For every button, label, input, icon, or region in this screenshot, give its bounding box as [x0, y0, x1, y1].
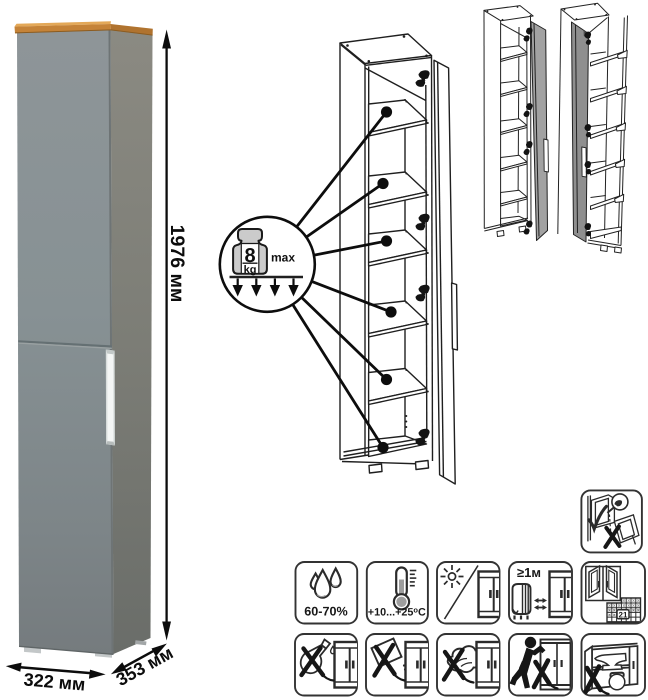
svg-text:≥1м: ≥1м — [517, 565, 541, 580]
svg-text:+10...+25oC: +10...+25oC — [368, 606, 426, 619]
svg-text:1976 мм: 1976 мм — [166, 225, 188, 303]
svg-text:60-70%: 60-70% — [304, 605, 347, 619]
svg-text:kg: kg — [244, 264, 257, 276]
svg-text:max: max — [271, 251, 295, 265]
svg-text:21: 21 — [619, 610, 628, 619]
